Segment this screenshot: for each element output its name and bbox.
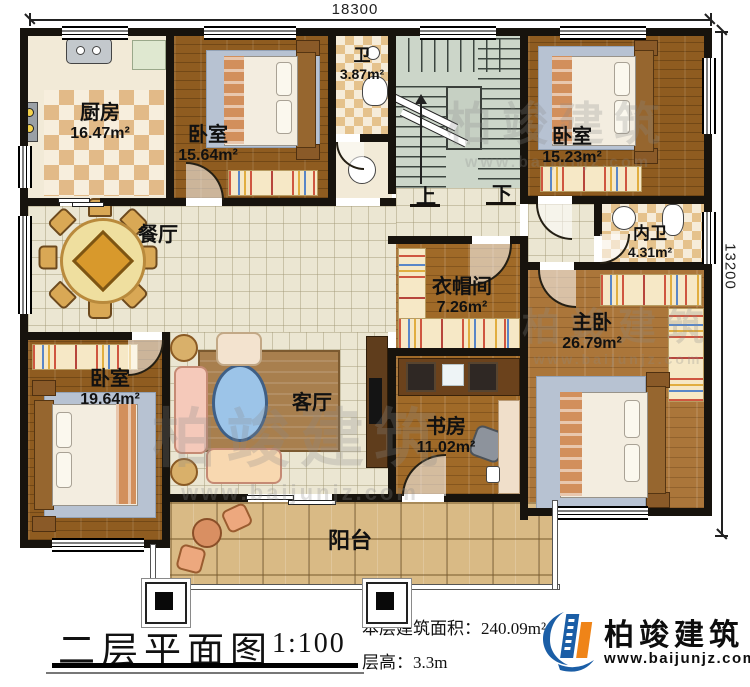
dimension-label-top: 18300: [310, 1, 400, 18]
wall-segment: [528, 262, 540, 270]
room-label-inner-bath: 内卫 4.31m²: [628, 224, 672, 260]
balcony-rail: [552, 500, 558, 590]
building-logo-icon: [530, 602, 606, 678]
cloakroom-wardrobe: [398, 318, 520, 350]
wall-segment: [388, 236, 472, 244]
living-name: 客厅: [292, 392, 332, 415]
room-label-kitchen: 厨房 16.47m²: [70, 102, 130, 143]
kitchen-sink-basin: [76, 46, 85, 55]
window: [52, 538, 144, 552]
pillow: [614, 62, 630, 96]
master-headboard: [646, 386, 666, 494]
wall-segment: [388, 348, 528, 356]
window: [420, 26, 496, 40]
wall-segment: [360, 134, 392, 142]
stairs-right-flight: [478, 38, 520, 188]
brand-logo-icon: [530, 602, 606, 678]
wall-segment: [572, 196, 712, 204]
tv-screen: [369, 378, 382, 424]
study-area: 11.02m²: [417, 439, 476, 457]
nightstand: [32, 516, 56, 532]
dining-chair: [39, 246, 58, 270]
nightstand: [32, 380, 56, 396]
bedroom-top-name: 卧室: [178, 124, 238, 147]
bedroom-top-closet: [228, 170, 318, 196]
room-label-cloakroom: 衣帽间 7.26m²: [432, 276, 492, 317]
dining-name: 餐厅: [138, 224, 178, 247]
inner-bath-name: 内卫: [628, 224, 672, 244]
floor-plan-page: 18300 13200 上 下: [0, 0, 750, 687]
window: [702, 58, 716, 134]
bedroom-left-name: 卧室: [80, 368, 140, 391]
master-closet-side: [668, 308, 704, 402]
stairs-down-underline: [486, 202, 516, 205]
title-underline-thin: [46, 672, 364, 674]
study-name: 书房: [417, 416, 476, 439]
study-chair: [406, 362, 436, 392]
kitchen-sliding-door: [72, 202, 104, 207]
wall-segment: [520, 36, 528, 204]
master-closet-top: [600, 274, 702, 306]
brand-url: www.baijunjz.com: [604, 650, 750, 667]
wall-segment: [222, 198, 336, 206]
dimension-label-right: 13200: [722, 237, 739, 297]
master-name: 主卧: [562, 312, 622, 335]
side-table: [170, 334, 198, 362]
bedroom-left-headboard: [34, 400, 54, 510]
cloakroom-area: 7.26m²: [432, 299, 492, 317]
wall-segment: [528, 196, 538, 204]
study-cabinet: [498, 400, 520, 494]
bedroom-right-area: 15.23m²: [542, 149, 602, 167]
bedroom-right-headboard: [634, 50, 654, 152]
balcony-rail: [148, 584, 560, 590]
bedroom-top-headboard: [296, 52, 316, 148]
brand-name: 柏竣建筑: [604, 610, 744, 654]
room-label-bedroom-top: 卧室 15.64m²: [178, 124, 238, 165]
armchair: [216, 332, 262, 366]
wall-segment: [100, 198, 186, 206]
bedroom-right-closet: [540, 166, 642, 192]
wall-segment: [20, 198, 60, 206]
wall-segment: [166, 36, 174, 206]
room-label-master: 主卧 26.79m²: [562, 312, 622, 353]
kitchen-sink: [66, 38, 112, 64]
wall-segment: [574, 262, 712, 270]
inner-bath-area: 4.31m²: [628, 244, 672, 260]
desk-pad: [442, 364, 464, 386]
wall-segment: [166, 494, 248, 502]
sofa-second: [206, 448, 282, 484]
wall-segment: [380, 198, 396, 206]
master-area: 26.79m²: [562, 335, 622, 353]
stairs-up-underline: [410, 204, 440, 207]
coffee-table: [212, 364, 268, 442]
wall-segment: [388, 348, 396, 494]
master-blanket: [560, 392, 582, 496]
waste-bin: [486, 466, 500, 483]
wall-segment: [444, 494, 528, 502]
title-underline-thick: [52, 663, 358, 668]
pillow: [56, 452, 72, 488]
window: [62, 26, 128, 40]
balcony-sliding-door: [246, 495, 294, 500]
window: [18, 146, 32, 188]
wall-segment: [594, 204, 602, 236]
kitchen-area: 16.47m²: [70, 125, 130, 143]
wall-segment: [162, 332, 170, 548]
window: [556, 506, 648, 520]
room-label-bedroom-right: 卧室 15.23m²: [542, 126, 602, 167]
room-label-bath: 卫 3.87m²: [340, 46, 384, 82]
balcony-pillar: [366, 582, 408, 624]
cloakroom-name: 衣帽间: [432, 276, 492, 299]
stairs-direction-line: [420, 100, 422, 184]
pillow: [624, 400, 640, 438]
wall-segment: [332, 494, 392, 502]
dimension-line-top: [30, 19, 712, 21]
wall-segment: [328, 36, 336, 206]
bedroom-left-blanket: [116, 404, 136, 504]
room-label-bedroom-left: 卧室 19.64m²: [80, 368, 140, 409]
sofa-main: [174, 366, 208, 454]
bedroom-left-area: 19.64m²: [80, 391, 140, 409]
kitchen-name: 厨房: [70, 102, 130, 125]
pillow: [56, 412, 72, 448]
balcony-sliding-door: [288, 500, 336, 505]
window: [204, 26, 296, 40]
room-label-dining: 餐厅: [138, 224, 178, 247]
bedroom-right-name: 卧室: [542, 126, 602, 149]
room-label-study: 书房 11.02m²: [417, 416, 476, 457]
balcony-name: 阳台: [328, 528, 372, 553]
bedroom-left-closet: [32, 344, 138, 370]
nightstand: [646, 492, 670, 508]
wall-segment: [520, 238, 528, 520]
balcony-table: [192, 518, 222, 548]
room-label-balcony: 阳台: [328, 528, 372, 553]
pillow: [624, 444, 640, 482]
wall-segment: [510, 236, 528, 244]
stairs-arrow-head: [415, 94, 427, 104]
balcony-pillar: [145, 582, 187, 624]
pillow: [276, 62, 292, 96]
plan-scale: 1:100: [272, 628, 346, 660]
window: [18, 216, 32, 314]
study-chair: [468, 362, 498, 392]
pillow: [614, 100, 630, 134]
kitchen-sink-basin: [92, 46, 101, 55]
side-table: [170, 458, 198, 486]
window: [560, 26, 646, 40]
bath-area: 3.87m²: [340, 66, 384, 82]
bath-name: 卫: [340, 46, 384, 66]
pillow: [276, 100, 292, 134]
wall-segment: [20, 332, 132, 340]
bedroom-top-area: 15.64m²: [178, 147, 238, 165]
window: [702, 212, 716, 264]
kitchen-fridge: [132, 40, 166, 70]
floor-height-text: 层高：3.3m: [362, 648, 447, 673]
wall-segment: [388, 36, 396, 194]
room-label-living: 客厅: [292, 392, 332, 415]
